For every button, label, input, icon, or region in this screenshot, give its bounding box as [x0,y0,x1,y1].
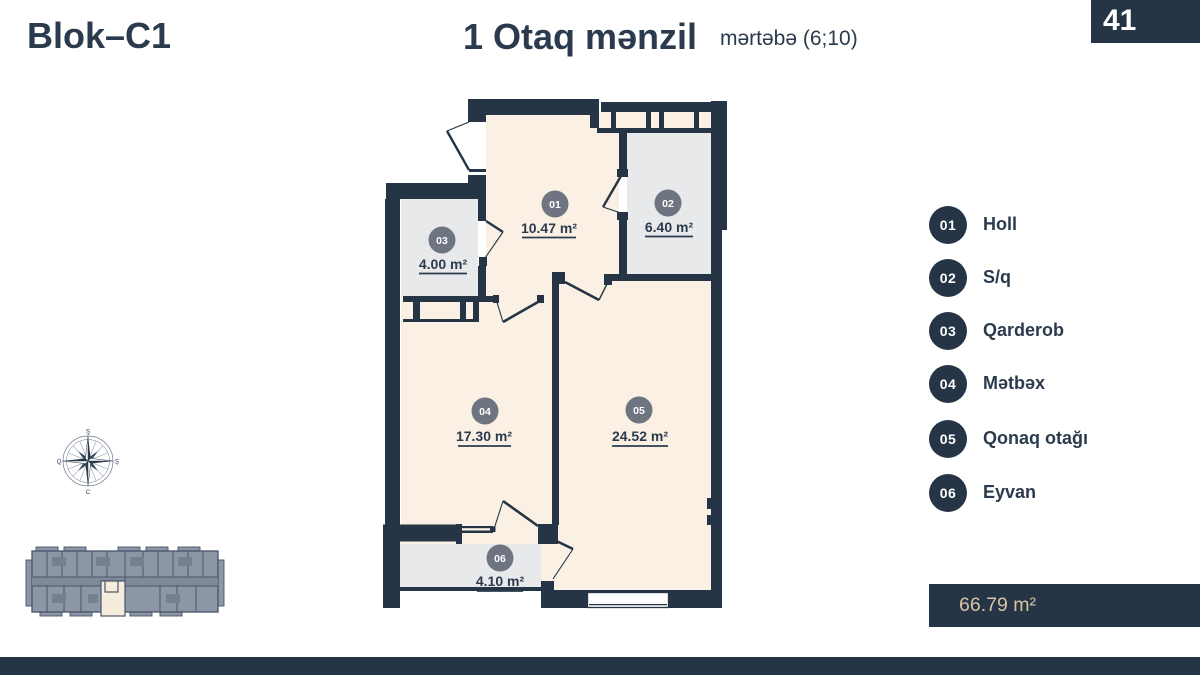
svg-text:02: 02 [662,198,674,210]
svg-text:04: 04 [479,406,491,418]
svg-text:05: 05 [633,405,645,417]
svg-text:Ş: Ş [86,429,90,436]
svg-text:Q: Q [57,459,62,466]
svg-text:24.52 m²: 24.52 m² [612,428,668,444]
svg-text:4.00 m²: 4.00 m² [419,256,468,272]
svg-text:C: C [86,489,91,496]
svg-text:Ş: Ş [115,459,119,466]
svg-text:10.47 m²: 10.47 m² [521,220,577,236]
svg-text:4.10 m²: 4.10 m² [476,573,525,589]
svg-text:17.30 m²: 17.30 m² [456,428,512,444]
svg-text:06: 06 [494,553,506,565]
svg-text:03: 03 [436,235,448,247]
svg-text:01: 01 [549,199,561,211]
svg-text:6.40 m²: 6.40 m² [645,219,694,235]
